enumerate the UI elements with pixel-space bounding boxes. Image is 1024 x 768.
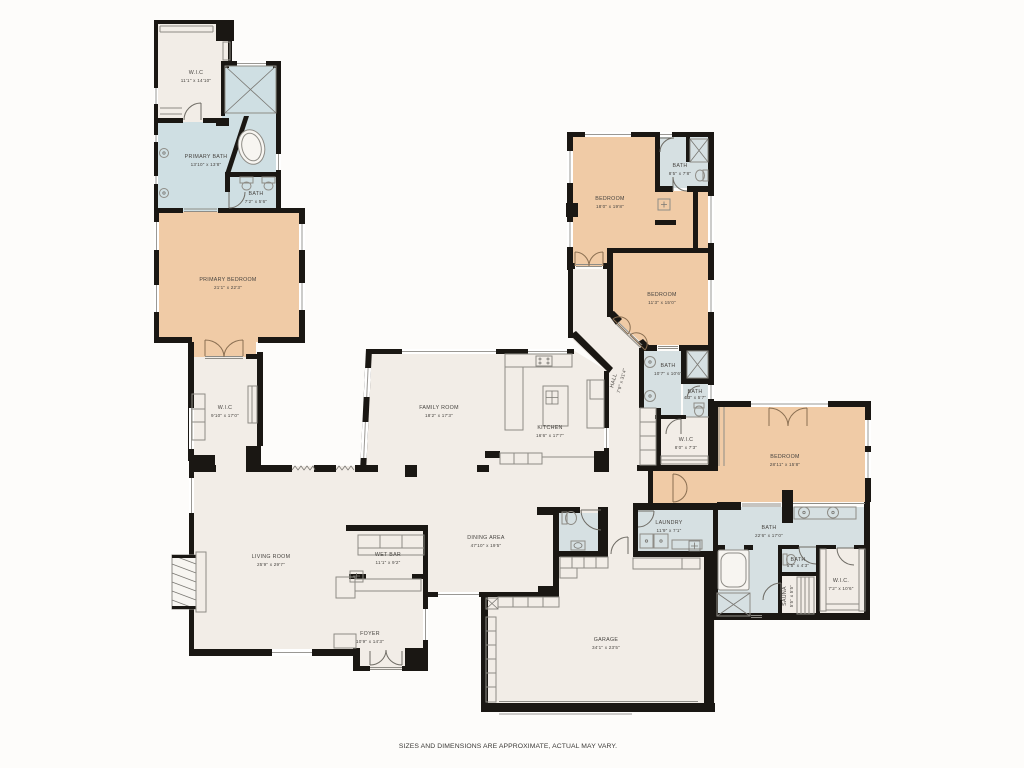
svg-text:18'2" x 17'3": 18'2" x 17'3"	[425, 413, 453, 418]
svg-text:W.I.C: W.I.C	[189, 70, 203, 76]
svg-text:PRIMARY BEDROOM: PRIMARY BEDROOM	[199, 277, 256, 283]
svg-text:11'1" x 14'10": 11'1" x 14'10"	[181, 78, 212, 83]
svg-text:47'10" x 19'5": 47'10" x 19'5"	[471, 543, 502, 548]
svg-text:BATH: BATH	[249, 191, 264, 197]
svg-text:5'5" x 5'5": 5'5" x 5'5"	[789, 585, 794, 608]
svg-text:LAUNDRY: LAUNDRY	[655, 520, 682, 526]
svg-text:W.I.C: W.I.C	[218, 405, 232, 411]
svg-text:BEDROOM: BEDROOM	[647, 292, 676, 298]
svg-text:8'5" x 7'8": 8'5" x 7'8"	[669, 171, 692, 176]
svg-text:18'0" x 19'8": 18'0" x 19'8"	[596, 204, 624, 209]
svg-text:28'11" x 15'8": 28'11" x 15'8"	[770, 462, 801, 467]
svg-text:21'1" x 22'3": 21'1" x 22'3"	[214, 285, 242, 290]
svg-text:W.I.C: W.I.C	[679, 437, 693, 443]
svg-text:7'2" x 5'6": 7'2" x 5'6"	[245, 199, 268, 204]
svg-text:9'10" x 17'0": 9'10" x 17'0"	[211, 413, 239, 418]
svg-text:LIVING ROOM: LIVING ROOM	[252, 554, 291, 560]
svg-text:BATH: BATH	[762, 525, 777, 531]
svg-text:BATH: BATH	[661, 363, 676, 369]
svg-text:BEDROOM: BEDROOM	[770, 454, 799, 460]
svg-text:BEDROOM: BEDROOM	[595, 196, 624, 202]
svg-text:25'9" x 29'7": 25'9" x 29'7"	[257, 562, 285, 567]
svg-text:22'6" x 17'0": 22'6" x 17'0"	[755, 533, 783, 538]
svg-text:GARAGE: GARAGE	[594, 637, 619, 643]
svg-text:8'0" x 7'3": 8'0" x 7'3"	[675, 445, 698, 450]
svg-text:11'1" x 9'2": 11'1" x 9'2"	[376, 560, 401, 565]
svg-text:BATH: BATH	[673, 163, 688, 169]
svg-text:5'5" x 4'3": 5'5" x 4'3"	[787, 563, 810, 568]
svg-text:4'3" x 5'7": 4'3" x 5'7"	[684, 395, 707, 400]
svg-text:WET BAR: WET BAR	[375, 552, 401, 558]
svg-text:7'2" x 10'6": 7'2" x 10'6"	[828, 586, 853, 591]
svg-text:PRIMARY BATH: PRIMARY BATH	[185, 154, 228, 160]
svg-text:FAMILY ROOM: FAMILY ROOM	[419, 405, 459, 411]
svg-text:W.I.C.: W.I.C.	[833, 578, 849, 584]
svg-text:16'6" x 17'7": 16'6" x 17'7"	[536, 433, 564, 438]
svg-text:10'9" x 14'3": 10'9" x 14'3"	[356, 639, 384, 644]
svg-text:11'9" x 7'1": 11'9" x 7'1"	[657, 528, 682, 533]
svg-text:11'3" x 15'0": 11'3" x 15'0"	[648, 300, 676, 305]
svg-text:DINING AREA: DINING AREA	[467, 535, 505, 541]
svg-text:KITCHEN: KITCHEN	[537, 425, 562, 431]
svg-text:SIZES AND DIMENSIONS ARE APPRO: SIZES AND DIMENSIONS ARE APPROXIMATE, AC…	[399, 743, 617, 750]
svg-text:10'7" x 10'6": 10'7" x 10'6"	[654, 371, 682, 376]
svg-text:SAUNA: SAUNA	[782, 586, 788, 606]
svg-text:FOYER: FOYER	[360, 631, 380, 637]
svg-text:13'10" x 13'8": 13'10" x 13'8"	[191, 162, 222, 167]
svg-text:34'1" x 23'5": 34'1" x 23'5"	[592, 645, 620, 650]
